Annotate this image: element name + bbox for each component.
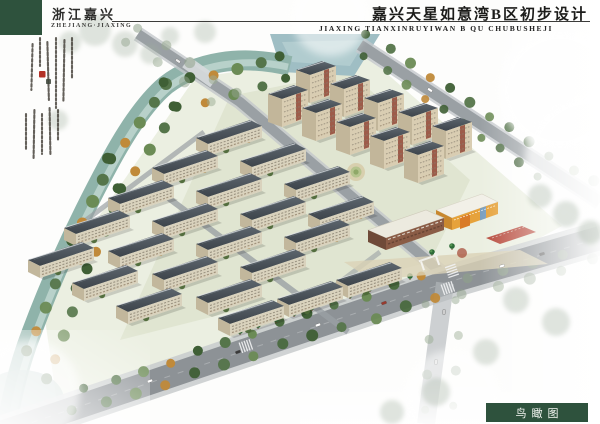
view-label-text: 鸟瞰图 [516,405,564,421]
aerial-rendering [0,0,600,424]
corner-brand-block [0,0,42,35]
region-name-en: ZHEJIANG·JIAXING [51,23,132,29]
calligraphy-seal [39,71,46,78]
project-title-en: JIAXING TIANXINRUYIWAN B QU CHUBUSHEJI [319,24,553,33]
view-label-badge: 鸟瞰图 [486,403,588,422]
region-name-cn: 浙江嘉兴 [52,4,116,23]
calligraphy-seal-dark [46,79,51,84]
calligraphy-inscription [6,36,86,166]
project-title-cn: 嘉兴天星如意湾B区初步设计 [372,3,588,24]
drawing-sheet: 浙江嘉兴 ZHEJIANG·JIAXING 嘉兴天星如意湾B区初步设计 JIAX… [0,0,600,424]
